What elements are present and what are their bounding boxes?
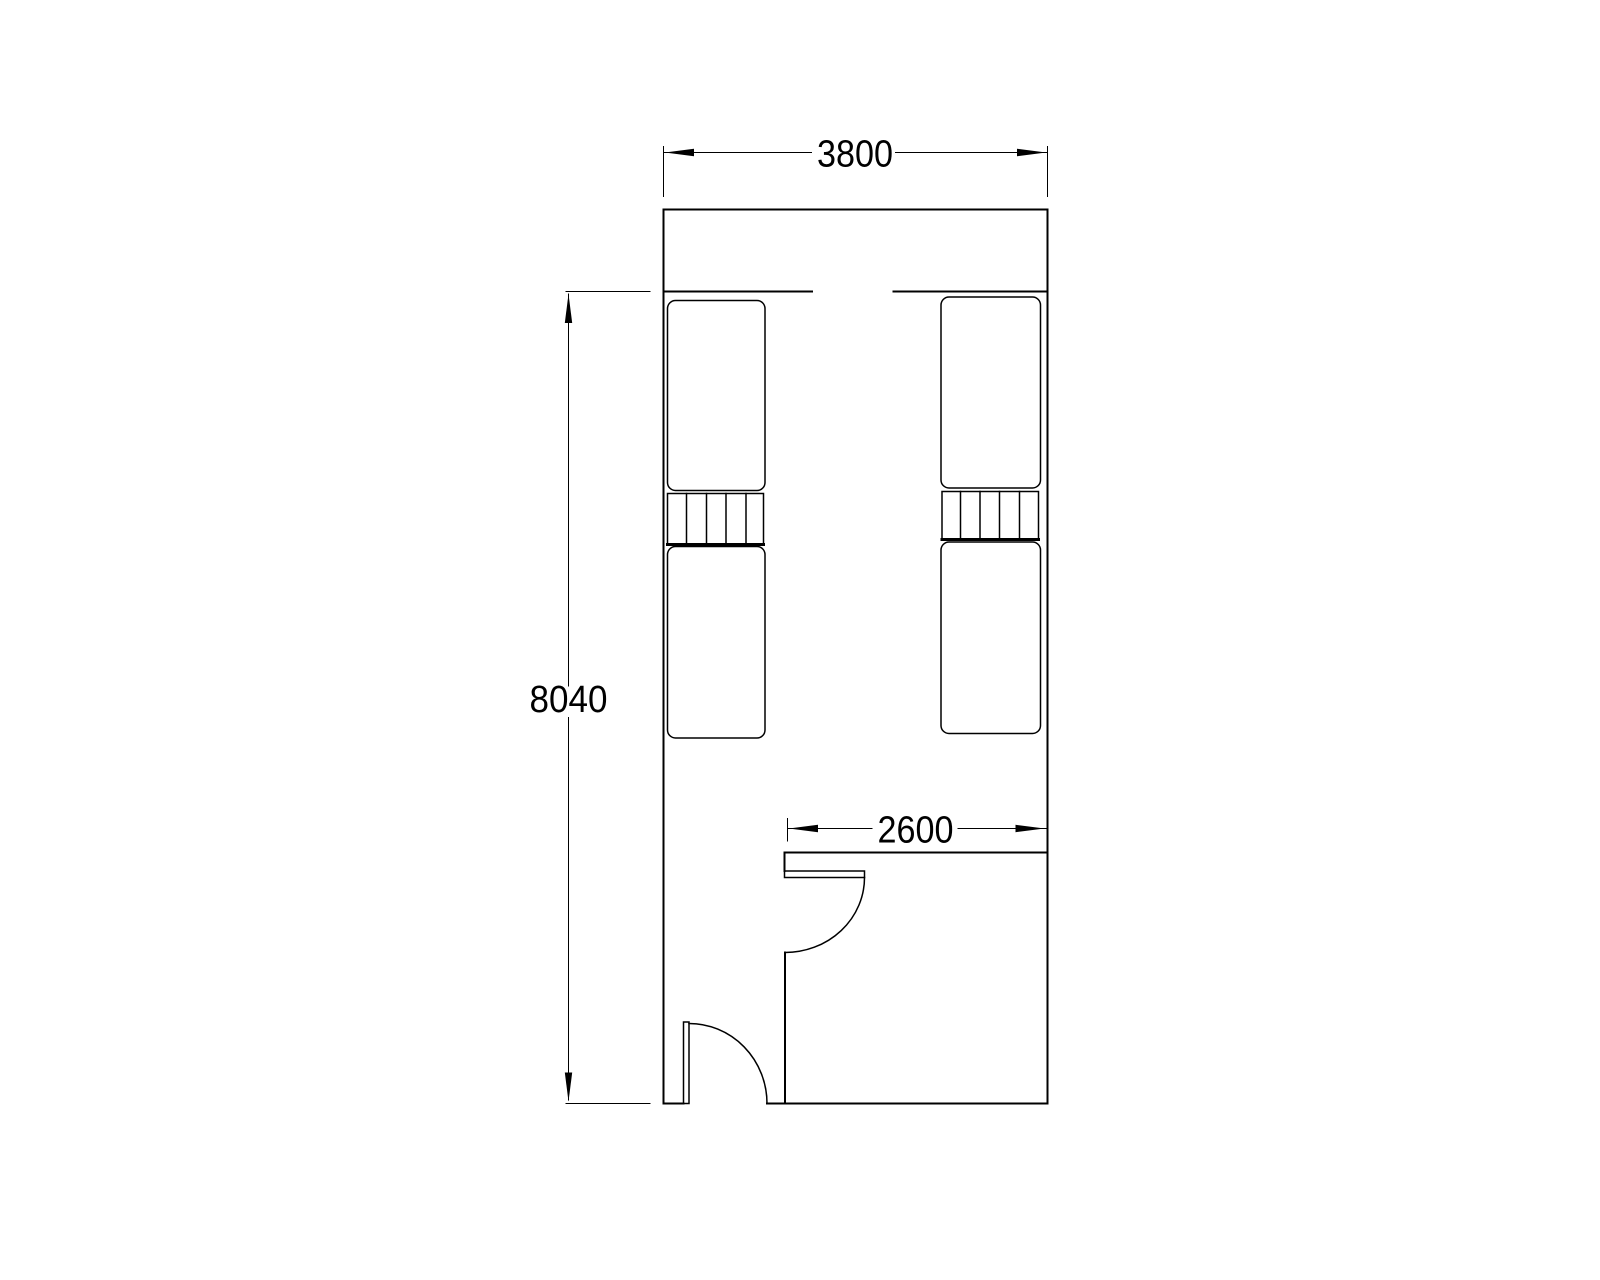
dim-room-label: 2600 (878, 810, 954, 852)
dim-height-label: 8040 (530, 679, 608, 721)
floor-plan-canvas: 3800 8040 2600 (0, 0, 1600, 1280)
canvas-background (0, 0, 1600, 1280)
dim-width-label: 3800 (817, 134, 893, 176)
